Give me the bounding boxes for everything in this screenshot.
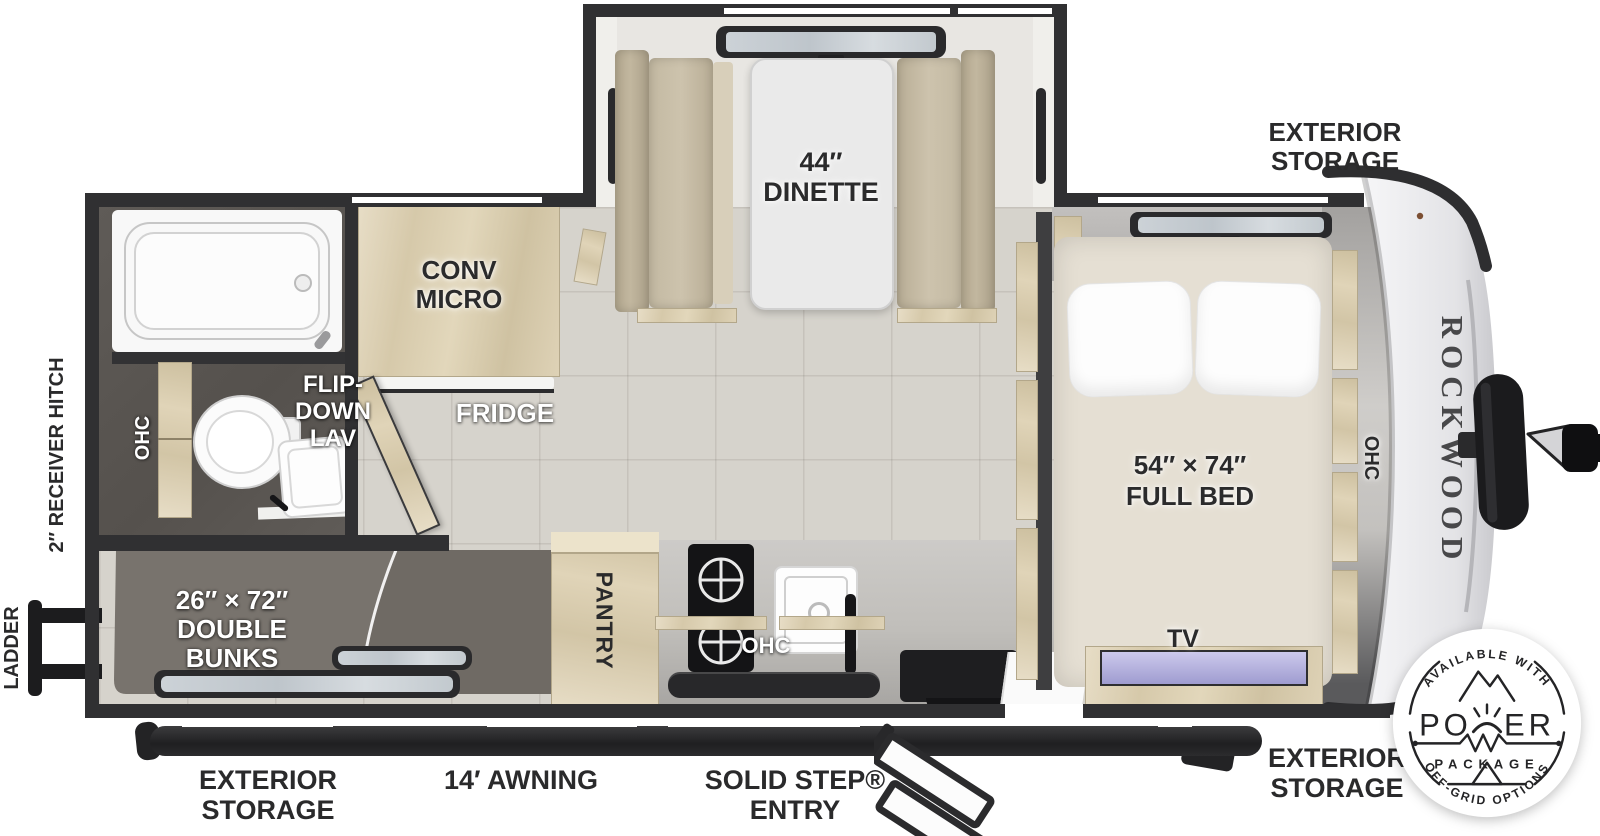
dinette-window-glass [726,32,936,52]
counter-extension-left [655,616,767,630]
bunk-window-lower-glass [161,676,453,692]
counter-extension-right [779,616,885,630]
bunk-window-upper-glass [338,651,466,665]
dinette-name-text: DINETTE [754,178,888,208]
lav-line2: DOWN [273,399,393,426]
bed-name: FULL BED [1090,481,1290,512]
slide-wall-left [583,4,596,207]
stove-drip-tray [668,672,880,698]
wall-bathroom-bunk [99,535,449,551]
receiver-hitch-label: 2″ RECEIVER HITCH [46,325,68,585]
conv-micro-label: CONV MICRO [359,256,559,313]
dinette-size-text: 44″ [754,148,888,178]
awning-label: 14′ AWNING [421,766,621,796]
dinette-size-label: 44″ DINETTE [754,148,888,207]
lav-line3: LAV [273,426,393,453]
exterior-storage-top-label: EXTERIOR STORAGE [1245,118,1425,176]
wall-bottom [85,704,1390,718]
ext-top-l1: EXTERIOR [1245,118,1425,147]
conv-text: CONV [359,256,559,285]
ext-bl-l1: EXTERIOR [178,766,358,796]
bunks-line2: DOUBLE [132,615,332,644]
furnace [900,650,1018,702]
bathroom-ohc-cabinet [158,362,192,518]
tub-inner [134,232,320,330]
kitchen-faucet [845,594,856,674]
dinette-bench-left-back [615,50,649,312]
awning-roll [150,726,1262,756]
window-strip-slide-2 [958,8,1052,14]
window-strip-top-left [352,197,542,203]
entry-l1: SOLID STEP® [665,766,925,796]
bathroom-ohc-label: OHC [132,378,154,498]
bed-size: 54″ × 74″ [1090,450,1290,481]
window-strip-top-right [1098,197,1328,203]
bed-window-glass [1138,217,1324,233]
window-strip-slide-1 [724,8,950,14]
bathroom-ohc-cabinet-split [158,438,192,440]
floorplan-canvas: 44″ DINETTE CONV MICRO FRIDGE FLIP- DOWN… [0,0,1600,836]
fridge-front-line [366,389,554,393]
bunks-line3: BUNKS [132,644,332,673]
bed-label: 54″ × 74″ FULL BED [1090,450,1290,512]
bedroom-divider-door-2 [1016,380,1038,520]
pantry-label: PANTRY [591,551,616,691]
badge-package-text: PACKAGE [1434,757,1539,772]
entry-l2: ENTRY [665,796,925,826]
tv-label: TV [1143,626,1223,654]
kitchen-ohc-label: OHC [726,634,806,658]
bedroom-divider-door-3 [1016,528,1038,680]
flip-down-lav-label: FLIP- DOWN LAV [273,372,393,453]
lav-line1: FLIP- [273,372,393,399]
fridge-top-shelf [366,377,554,389]
bedroom-divider-track [1036,212,1052,690]
awning-rail-dash-3 [668,721,860,727]
slide-wall-right [1054,4,1067,207]
tub-ledge [112,352,345,364]
bed-pillow-left [1066,280,1194,398]
power-package-badge: AVAILABLE WITH OFF-GRID OPTIONS PO ER PA… [1390,626,1584,820]
fridge-label: FRIDGE [425,399,585,428]
bedroom-ohc-label: OHC [1360,398,1382,518]
dinette-bench-left-edge [713,62,733,304]
dinette-bench-left-seat [649,58,713,308]
badge-power-right: ER [1504,708,1555,743]
awning-rail-dash-1 [182,721,333,727]
awning-rail-dash-4 [1158,721,1192,727]
dinette-side-window-right [1036,88,1046,184]
badge-power-left: PO [1419,708,1472,743]
dinette-bench-right-seat [897,58,961,308]
flip-down-sink-basin [286,445,343,509]
dinette-bench-right-base [897,308,997,323]
exterior-storage-bottom-left-label: EXTERIOR STORAGE [178,766,358,825]
awning-rail-dash-2 [487,721,637,727]
ladder-label: LADDER [1,578,23,718]
double-bunks-label: 26″ × 72″ DOUBLE BUNKS [132,586,332,673]
bunks-size: 26″ × 72″ [132,586,332,615]
dinette-bench-left-base [637,308,737,323]
tv-screen [1100,650,1308,686]
ext-top-l2: STORAGE [1245,147,1425,176]
micro-text: MICRO [359,285,559,314]
wall-left [85,193,99,718]
bedroom-divider-door-1 [1016,242,1038,372]
tub-drain [294,274,312,292]
entry-label: SOLID STEP® ENTRY [665,766,925,825]
dinette-bench-right-back [961,50,995,312]
entry-door-opening [1005,704,1083,718]
hitch-assembly [1456,368,1600,552]
ext-bl-l2: STORAGE [178,796,358,826]
